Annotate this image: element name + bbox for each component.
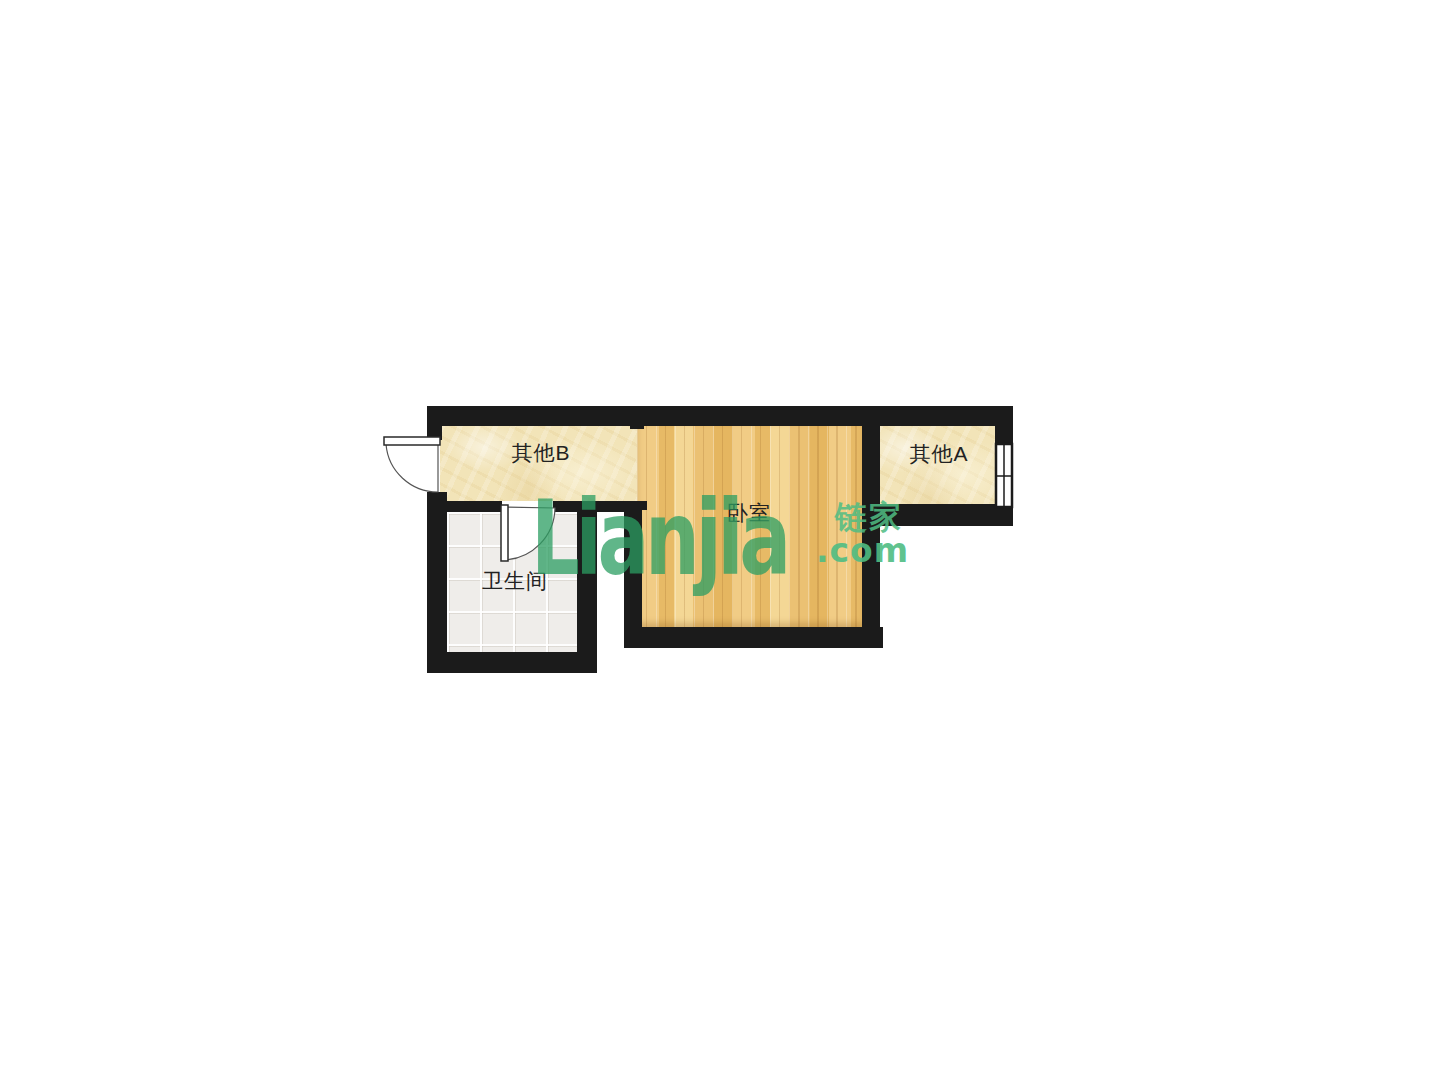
room-label-other-b: 其他B [511,439,570,467]
room-label-bathroom: 卫生间 [482,567,548,595]
entrance-door-leaf [384,437,440,445]
floorplan-canvas: 其他B 卧室 其他A 卫生间 Lianjia 链家 .com [0,0,1440,1080]
room-label-other-a: 其他A [909,440,968,468]
entrance-door-swing-arc [386,444,438,492]
window [996,444,1012,507]
doors-window-overlay [0,0,1440,1080]
bathroom-door-leaf [501,505,508,561]
bathroom-door-swing-arc [503,507,555,560]
room-label-bedroom: 卧室 [727,499,771,527]
